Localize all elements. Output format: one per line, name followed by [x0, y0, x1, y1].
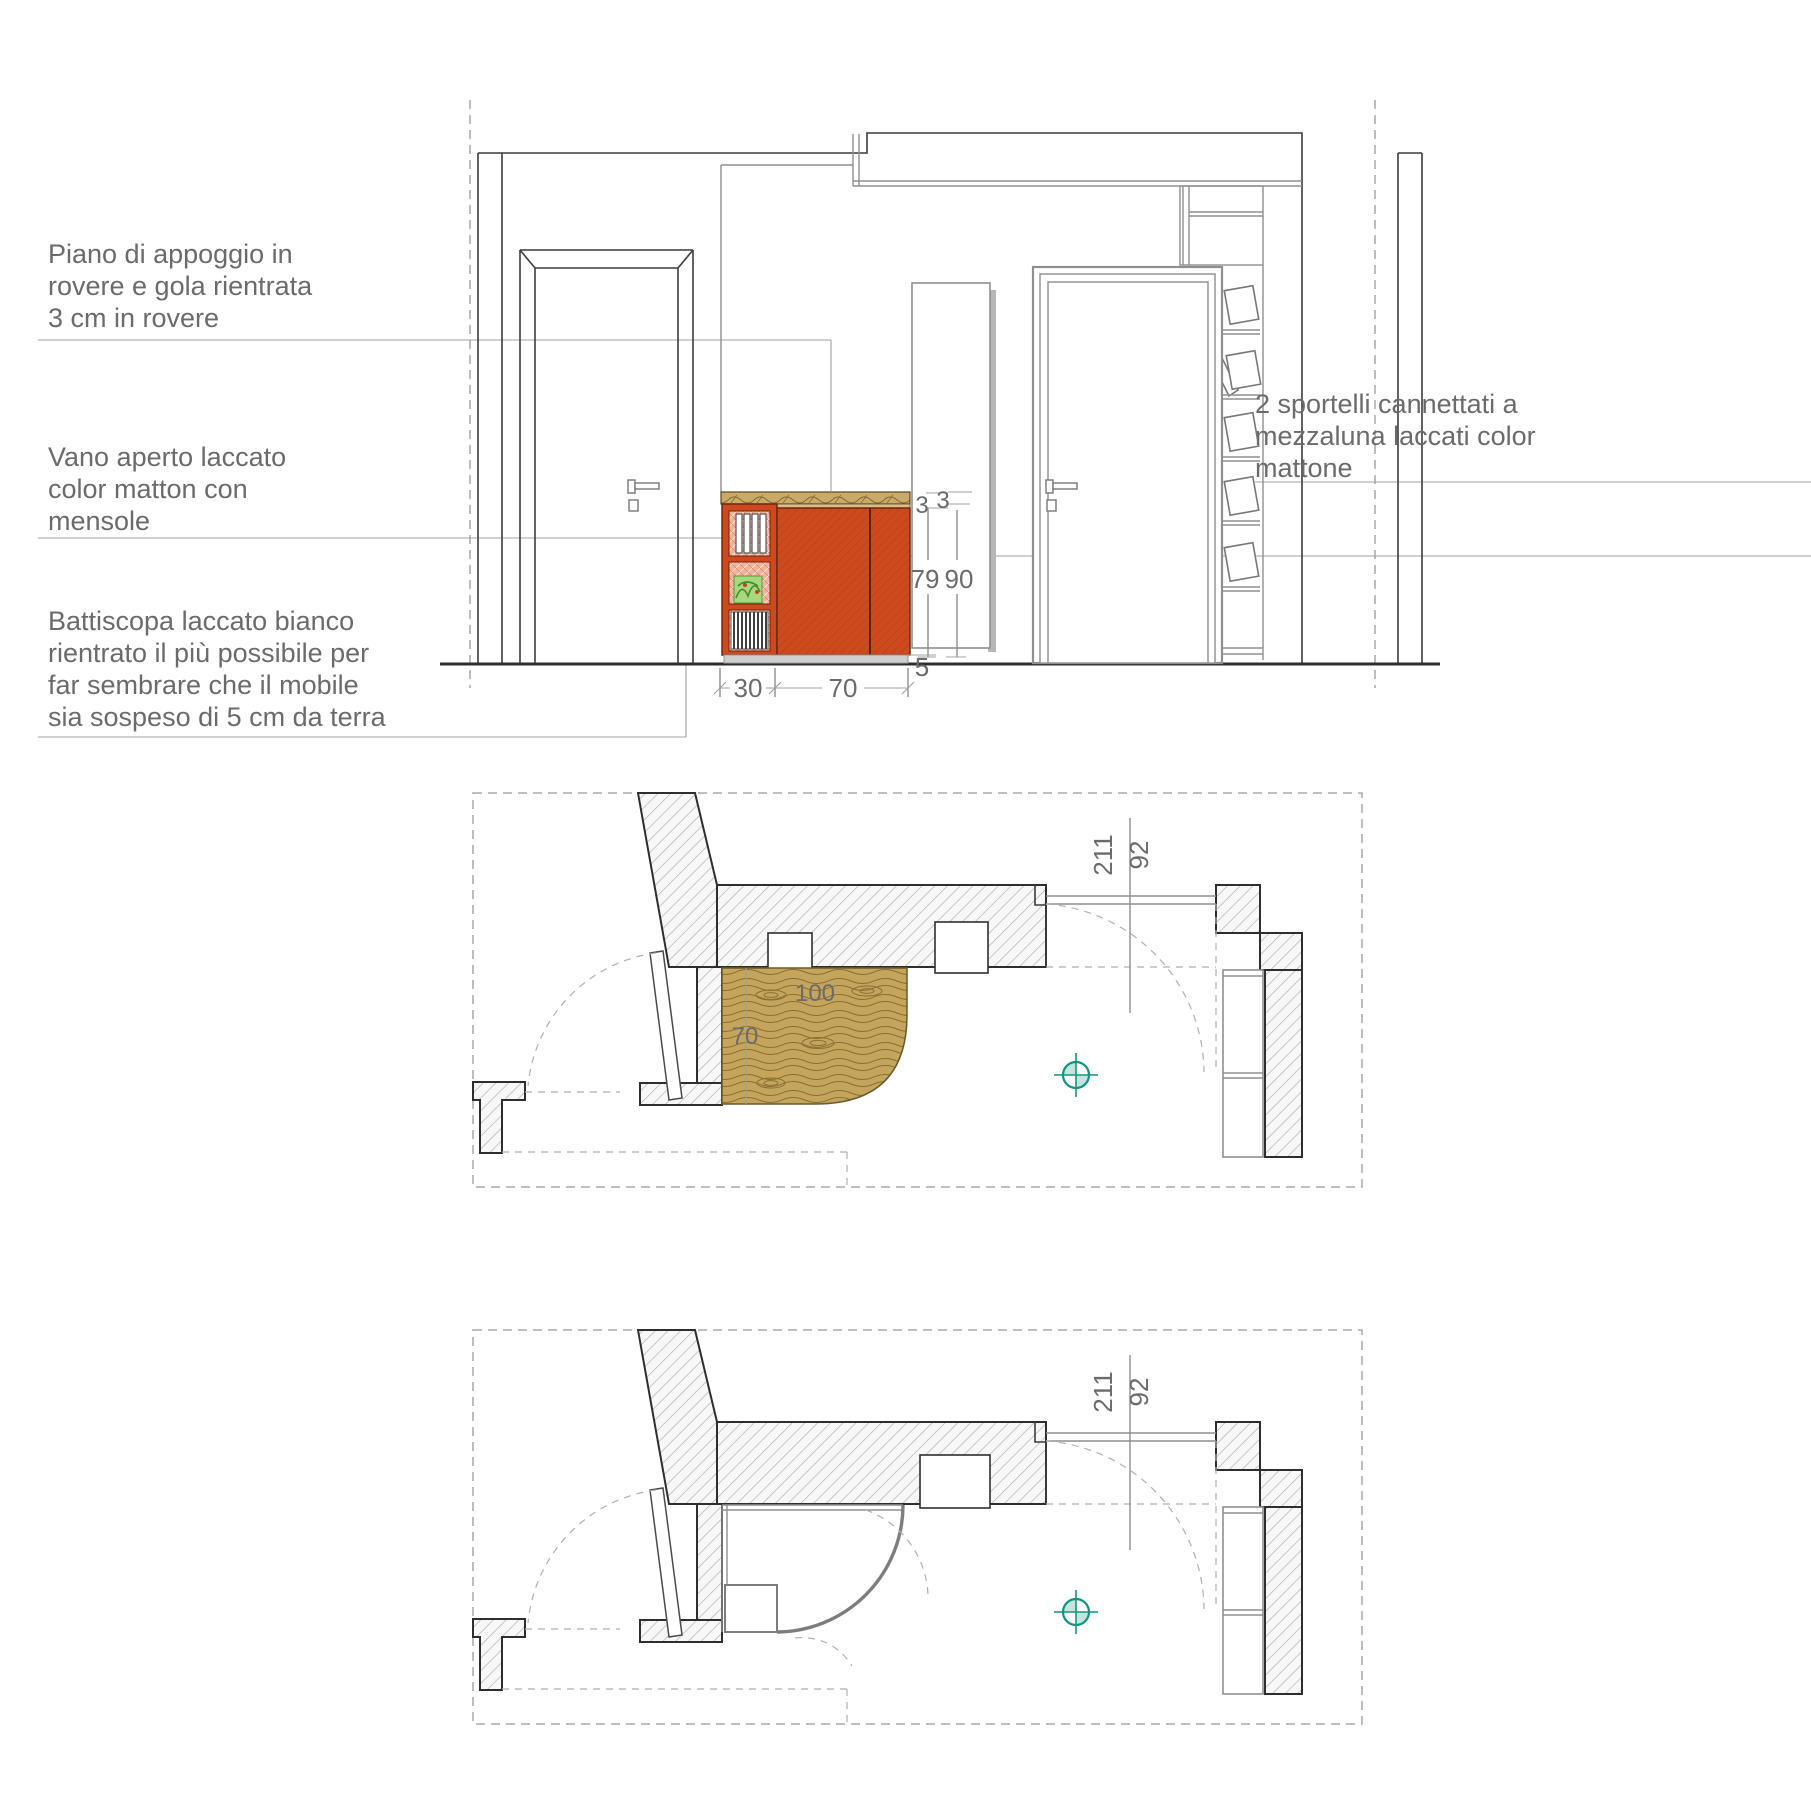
plan1-dim-70: 70: [732, 1023, 759, 1050]
annotation-line: Vano aperto laccato: [48, 441, 286, 473]
plan1-architrave: [1046, 896, 1216, 904]
plan1-niche-box: [935, 922, 988, 973]
plan2-dim-211: 211: [1088, 1371, 1118, 1412]
plan-view-bottom: 92 211: [473, 1330, 1362, 1724]
plan1-right-jamb-block: [1216, 885, 1260, 933]
plan1-top-wall-band: [717, 885, 1046, 967]
plan1-light-point-symbol: [1054, 1053, 1098, 1097]
annotation-sportelli: 2 sportelli cannettati a mezzaluna lacca…: [1255, 388, 1536, 484]
soffit-band: [853, 134, 1302, 186]
tall-panel: [912, 283, 996, 652]
plan2-niche-box: [920, 1455, 990, 1508]
shoe-shelf-5: [1224, 543, 1258, 582]
dim-gola-3: 3: [936, 487, 949, 514]
battiscopa-plinth: [724, 655, 908, 663]
plan1-entry-door-ghost: [1046, 904, 1216, 1072]
wall-cabinet-top-right: [1180, 186, 1263, 265]
plan2-door-ghost-arc-2: [795, 1638, 852, 1666]
plan1-cabinet-wood: 100 70: [722, 968, 907, 1104]
annotation-line: mattone: [1255, 452, 1536, 484]
plan2-diagonal-wall: [638, 1330, 717, 1504]
plan2-right-jamb-block: [1216, 1422, 1260, 1470]
dim-70: 70: [829, 673, 858, 703]
plan1-column: [1223, 970, 1263, 1157]
plan1-dim-211: 211: [1088, 834, 1118, 875]
shoe-shelf-3: [1224, 413, 1258, 452]
plan2-column: [1223, 1507, 1263, 1694]
plan2-right-wall-strip: [1265, 1507, 1302, 1694]
annotation-line: Piano di appoggio in: [48, 238, 312, 270]
plant-icon: [734, 576, 762, 603]
left-wall-stub: [478, 153, 502, 663]
cabinet-elevation: [721, 492, 910, 663]
oak-counter-top: [721, 492, 910, 504]
plan2-entry-door-swing: [1046, 1441, 1204, 1609]
cabinet-doors: [777, 508, 910, 655]
plan2-entry-door-ghost: [1046, 1441, 1216, 1609]
plan-view-top: 100 70 92 211: [473, 793, 1362, 1187]
annotation-line: mezzaluna laccati color: [1255, 420, 1536, 452]
annotation-line: rientrato il più possibile per: [48, 637, 386, 669]
plan1-entry-door-swing: [1046, 904, 1204, 1072]
plan2-light-point-symbol: [1054, 1590, 1098, 1634]
dim-90: 90: [945, 564, 974, 594]
plan2-right-corner-wall: [1260, 1470, 1302, 1507]
plan2-room-door: [528, 1488, 682, 1637]
annotation-line: color matton con: [48, 473, 286, 505]
left-door: [520, 250, 693, 663]
plan1-left-wall-piece: [473, 1082, 525, 1153]
annotation-vano: Vano aperto laccato color matton con men…: [48, 441, 286, 537]
plan1-wall-return: [697, 967, 722, 1085]
dim-30: 30: [734, 673, 763, 703]
annotation-line: mensole: [48, 505, 286, 537]
plan1-room-door: [528, 951, 682, 1100]
plan2-top-wall-band: [717, 1422, 1046, 1504]
architectural-drawing-sheet: 3 3 79 90 5 30 70: [0, 0, 1811, 1811]
annotation-line: Battiscopa laccato bianco: [48, 605, 386, 637]
annotation-line: sia sospeso di 5 cm da terra: [48, 701, 386, 733]
annotation-line: rovere e gola rientrata: [48, 270, 312, 302]
plan1-lower-dashed: [502, 1152, 847, 1187]
plan2-cabinet-door-open: [777, 1505, 903, 1632]
shoe-shelf-1: [1224, 286, 1258, 325]
plan2-lower-dashed: [502, 1689, 847, 1724]
annotation-line: 2 sportelli cannettati a: [1255, 388, 1536, 420]
plan1-dim-100: 100: [795, 980, 835, 1007]
plan2-left-wall-piece: [473, 1619, 525, 1690]
plan1-right-wall-strip: [1265, 970, 1302, 1157]
plan2-architrave: [1046, 1433, 1216, 1441]
annotation-battiscopa: Battiscopa laccato bianco rientrato il p…: [48, 605, 386, 733]
left-door-handle: [628, 480, 659, 511]
plan1-right-corner-wall: [1260, 933, 1302, 970]
niche-outline: [721, 165, 853, 492]
plan1-diagonal-wall: [638, 793, 717, 967]
dim-counter-3: 3: [915, 492, 928, 519]
shoe-shelf-2: [1226, 351, 1260, 390]
annotation-line: far sembrare che il mobile: [48, 669, 386, 701]
shoe-shelf-4: [1224, 477, 1258, 516]
annotation-piano: Piano di appoggio in rovere e gola rient…: [48, 238, 312, 334]
plan2-shelf-module: [725, 1585, 777, 1632]
dim-79: 79: [911, 564, 940, 594]
plan2-wall-return: [697, 1504, 722, 1622]
dim-5: 5: [915, 652, 929, 682]
striped-basket-icon: [731, 612, 768, 649]
annotation-line: 3 cm in rovere: [48, 302, 312, 334]
right-door: [1033, 267, 1222, 663]
plan2-dim-92: 92: [1124, 1378, 1154, 1407]
plan2-cabinet-outline: [722, 1505, 928, 1666]
plan1-dim-92: 92: [1124, 841, 1154, 870]
